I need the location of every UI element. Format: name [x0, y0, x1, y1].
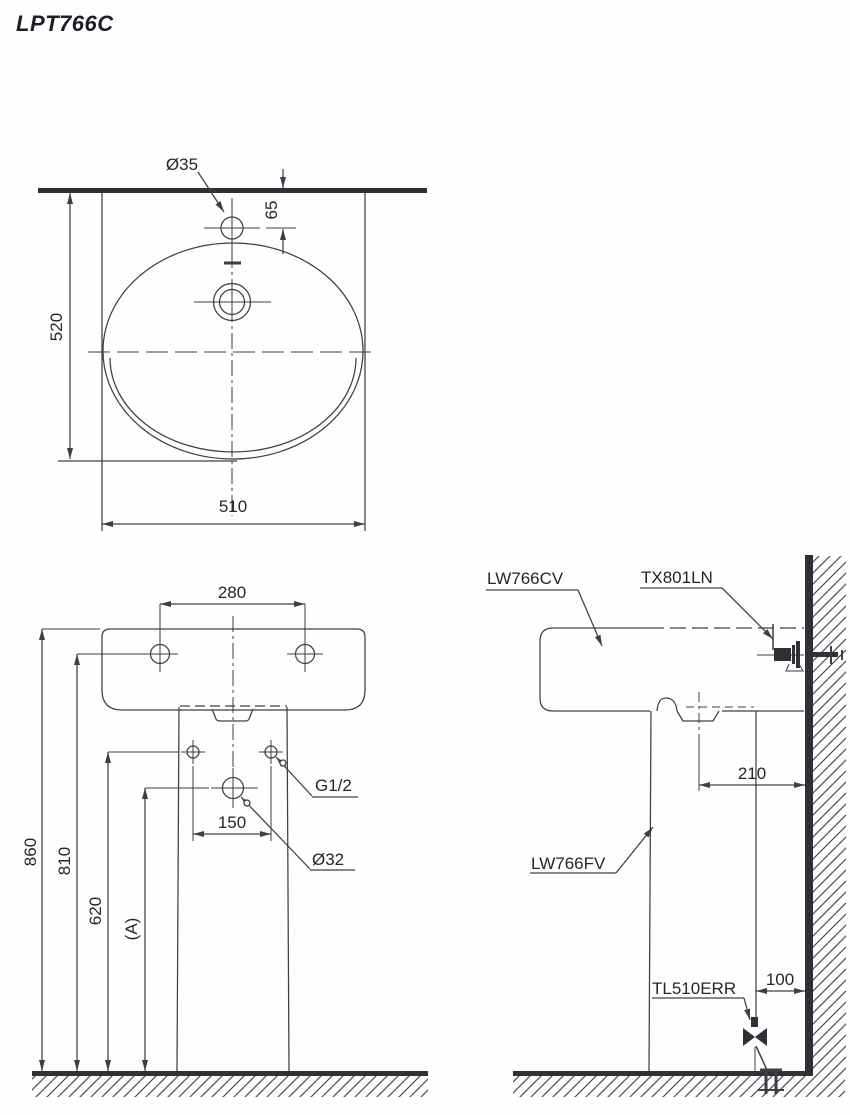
- basin-inner-rim: [110, 358, 356, 452]
- dim-860-label: 860: [21, 838, 40, 866]
- dim-mount-height-810: [74, 654, 148, 1071]
- faucet-hole: [204, 206, 296, 252]
- page-title: LPT766C: [16, 11, 114, 36]
- leader-faucet-model: [640, 588, 773, 639]
- technical-drawing: LPT766C: [0, 0, 850, 1115]
- basin-model-label: LW766CV: [487, 569, 564, 588]
- front-view: [32, 601, 428, 1097]
- wall-hatch: [813, 556, 846, 1076]
- dim-65-label: 65: [262, 201, 281, 220]
- dim-280-label: 280: [218, 583, 246, 602]
- wall-line: [38, 188, 427, 193]
- floor-hatch-front: [32, 1076, 428, 1097]
- top-view: [38, 169, 427, 531]
- dim-A-label: (A): [122, 918, 141, 941]
- dim-100-label: 100: [766, 970, 794, 989]
- floor-hatch-side: [513, 1076, 845, 1097]
- faucet-dia-label: Ø35: [166, 155, 198, 174]
- drain-dia-label: Ø32: [312, 850, 344, 869]
- basin-profile-side: [540, 628, 804, 721]
- supply-hole-left: [181, 740, 205, 764]
- dim-510-label: 510: [219, 497, 247, 516]
- drawing-page: LPT766C: [0, 0, 850, 1115]
- leader-basin-model: [486, 590, 602, 646]
- drain-valve-model-label: TL510ERR: [652, 979, 736, 998]
- dim-810-label: 810: [55, 847, 74, 875]
- dim-supply-height-620: [105, 752, 179, 1071]
- side-view: [486, 555, 846, 1097]
- drain-hole-top: [194, 283, 271, 322]
- basin-outer-rim: [103, 243, 363, 459]
- pedestal-model-label: LW766FV: [531, 854, 606, 873]
- drain-recess-side: [677, 711, 719, 721]
- drain-hole-front: [211, 768, 258, 808]
- dim-depth-520: [58, 193, 237, 461]
- supply-thread-label: G1/2: [315, 776, 352, 795]
- dim-width-510: [102, 521, 365, 527]
- floor-line-front: [32, 1071, 428, 1076]
- dim-210-label: 210: [738, 764, 766, 783]
- dim-150-label: 150: [218, 813, 246, 832]
- wall-line-side: [805, 555, 813, 1076]
- mount-hole-right: [287, 636, 323, 672]
- dim-520-label: 520: [47, 313, 66, 341]
- dim-drain-height-A: [142, 788, 209, 1071]
- recess-bump: [657, 698, 677, 711]
- faucet-model-label: TX801LN: [641, 568, 713, 587]
- dim-620-label: 620: [86, 897, 105, 925]
- floor-line-side: [513, 1071, 813, 1076]
- leader-drain-valve-model: [652, 998, 750, 1020]
